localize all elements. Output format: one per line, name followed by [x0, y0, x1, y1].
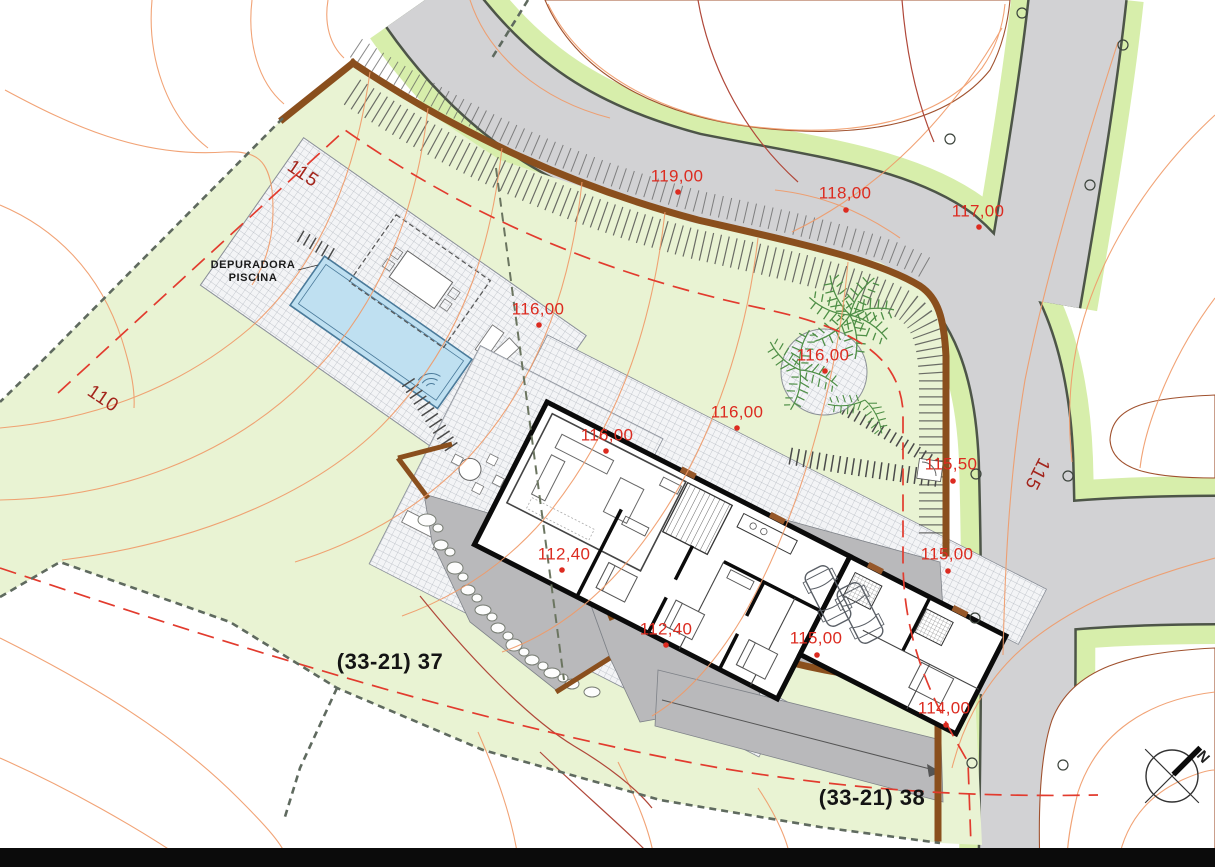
letterbox-bar [0, 848, 1215, 867]
pool-equipment-note-line2: PISCINA [211, 272, 296, 285]
elevation-label: 112,40 [640, 621, 693, 638]
elevation-label: 116,00 [512, 301, 565, 318]
elevation-label: 117,00 [952, 203, 1005, 220]
pool-equipment-note: DEPURADORA PISCINA [211, 259, 296, 285]
elevation-label: 116,00 [581, 427, 634, 444]
elevation-label: 115,50 [925, 456, 978, 473]
elevation-label: 114,00 [918, 700, 971, 717]
elevation-label: 119,00 [651, 168, 704, 185]
elevation-label: 116,00 [797, 347, 850, 364]
elevation-label: 112,40 [538, 546, 591, 563]
elevation-label: 118,00 [819, 185, 872, 202]
elevation-label: 115,00 [921, 546, 974, 563]
land-pocket-right [1110, 395, 1215, 478]
elevation-label: 116,00 [711, 404, 764, 421]
plot-label-38: (33-21) 38 [819, 787, 926, 809]
site-plan-page: 119,00 118,00 117,00 116,00 116,00 116,0… [0, 0, 1215, 867]
elevation-label: 115,00 [790, 630, 843, 647]
pool-equipment-note-line1: DEPURADORA [211, 259, 296, 272]
plot-label-37: (33-21) 37 [337, 651, 444, 673]
